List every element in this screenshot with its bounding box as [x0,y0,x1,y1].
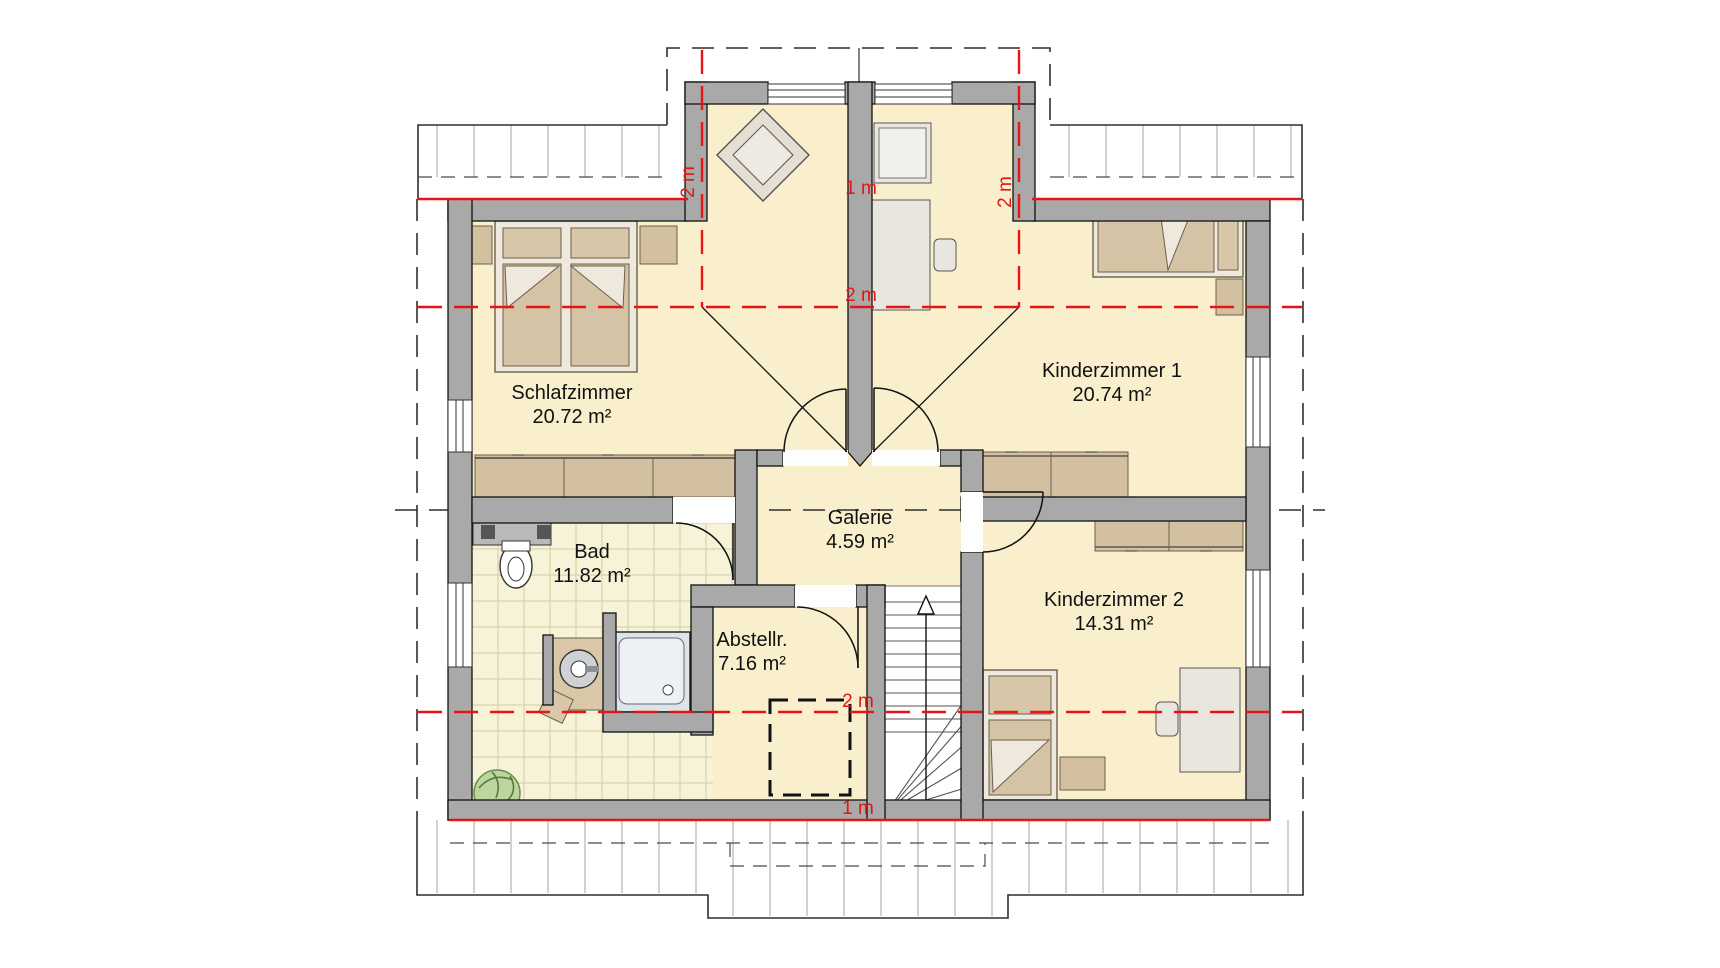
room-area-schlafzimmer: 20.72 m² [533,406,612,428]
shelf-inner [879,128,926,178]
room-label-galerie: Galerie [828,507,892,529]
room-area-galerie: 4.59 m² [826,531,894,553]
height-label-2m-bottom: 2 m [842,691,874,712]
room-label-bad: Bad [574,541,610,563]
nightstand-icon [1216,279,1243,315]
room-area-kinderzimmer2: 14.31 m² [1075,613,1154,635]
chair-icon [1156,702,1178,736]
dormer-window-icon [875,84,952,104]
sideboard-icon [975,452,1128,497]
window-icon [1246,570,1270,667]
height-label-1m-bottom: 1 m [842,798,874,819]
height-label-2m-top: 2 m [845,285,877,306]
cabinet-icon [1095,521,1243,551]
height-label-2m-dormer-right: 2 m [995,176,1016,208]
floorplan-canvas: Schlafzimmer 20.72 m² Kinderzimmer 1 20.… [0,0,1720,968]
staircase [885,586,965,818]
shower-icon [613,632,690,712]
room-label-schlafzimmer: Schlafzimmer [511,382,632,404]
window-icon [448,400,472,452]
room-area-bad: 11.82 m² [553,565,631,587]
room-label-abstellraum: Abstellr. [716,629,787,651]
floorplan-drawing: Schlafzimmer 20.72 m² Kinderzimmer 1 20.… [0,0,1720,968]
room-area-abstellraum: 7.16 m² [718,653,786,675]
nightstand-icon [640,226,677,264]
room-label-kinderzimmer1: Kinderzimmer 1 [1042,360,1182,382]
window-icon [1246,357,1270,447]
desk-icon [1180,668,1240,772]
window-icon [448,583,472,667]
room-area-kinderzimmer1: 20.74 m² [1073,384,1152,406]
height-label-2m-dormer-left: 2 m [678,166,699,198]
height-label-1m-top: 1 m [845,178,877,199]
wardrobe-icon [475,455,742,497]
nightstand-icon [1060,757,1105,790]
dormer-window-icon [768,84,845,104]
desk-icon [872,200,930,310]
room-label-kinderzimmer2: Kinderzimmer 2 [1044,589,1184,611]
chair-icon [934,239,956,271]
